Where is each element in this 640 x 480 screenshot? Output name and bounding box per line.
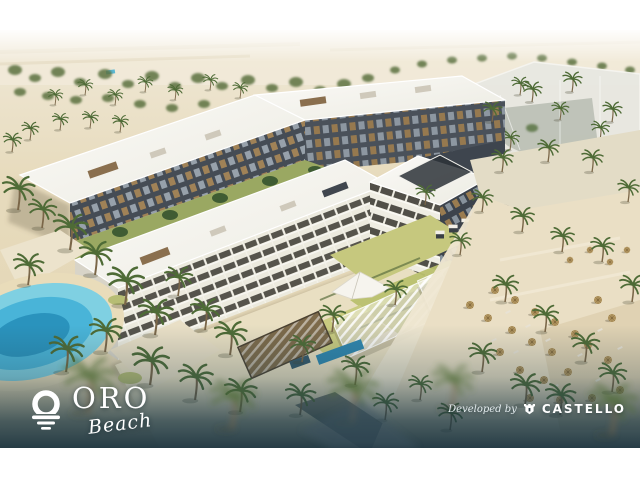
bottom-white-margin bbox=[0, 448, 640, 480]
render-canvas: ORO Beach Developed by CASTELLO bbox=[0, 0, 640, 480]
project-logo-text: ORO Beach bbox=[72, 384, 152, 434]
castle-shield-icon bbox=[523, 403, 536, 416]
sun-over-waves-icon bbox=[30, 390, 64, 432]
project-name: ORO bbox=[72, 384, 152, 413]
developed-by-label: Developed by bbox=[448, 404, 517, 415]
project-script: Beach bbox=[87, 411, 153, 438]
developer-name: CASTELLO bbox=[542, 402, 626, 416]
project-logo: ORO Beach bbox=[30, 384, 152, 434]
sky-haze bbox=[0, 0, 640, 62]
developer-credit: Developed by CASTELLO bbox=[448, 402, 626, 416]
